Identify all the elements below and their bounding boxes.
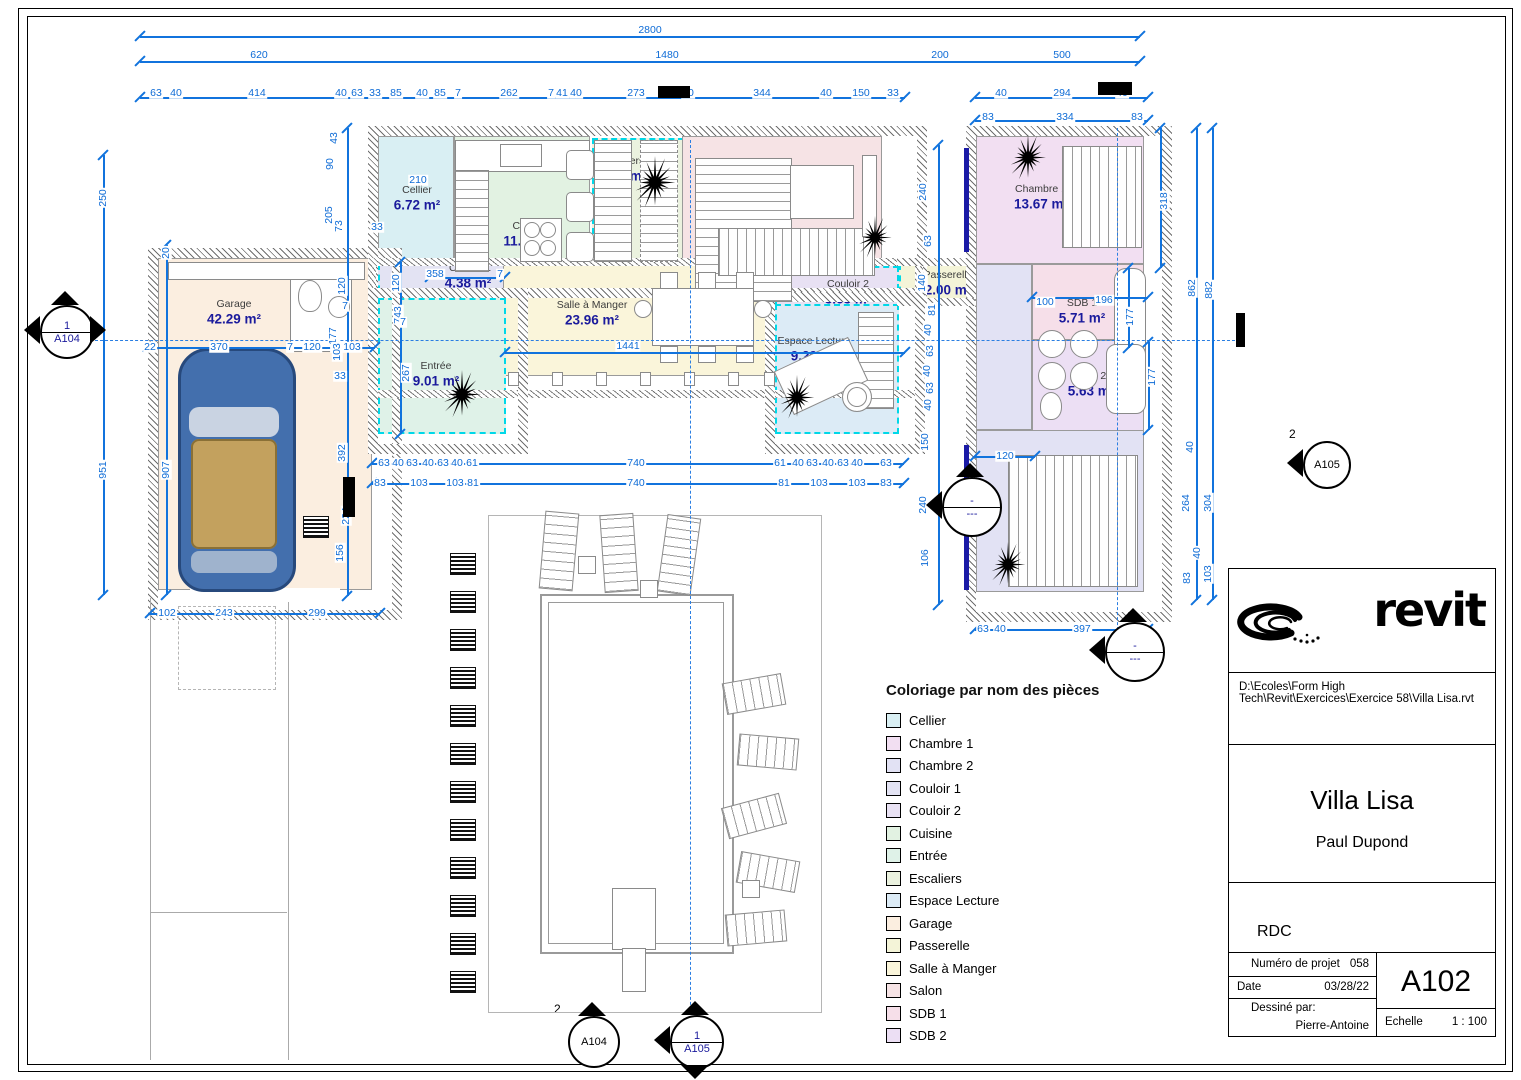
dimension-value: 1480: [654, 50, 679, 61]
stove-burner: [540, 222, 556, 238]
scale-label: Echelle: [1385, 1016, 1423, 1028]
car: [178, 348, 296, 592]
dimension-line: [1196, 128, 1198, 600]
car-windshield: [189, 407, 279, 437]
dimension-value: 85: [433, 88, 447, 99]
walkway-mat: [450, 667, 476, 689]
legend-item-sdb-1: SDB 1: [886, 1006, 1116, 1021]
dimension-line: [505, 352, 905, 354]
dimension-value: 40: [391, 458, 405, 469]
dimension-line: [166, 245, 168, 595]
dining-chair: [698, 346, 716, 363]
view-marker-arrow: [926, 491, 942, 519]
dimension-value: 90: [325, 157, 336, 171]
dimension-value: 20: [161, 246, 172, 260]
legend-label: Chambre 1: [909, 736, 973, 751]
legend-item-salon: Salon: [886, 983, 1116, 998]
dimension-value: 40: [169, 88, 183, 99]
centerline: [95, 340, 1245, 341]
dimension-value: 81: [466, 478, 480, 489]
view-marker-arrow: [90, 316, 106, 344]
pool-lounger: [725, 909, 788, 946]
dimension-value: 120: [995, 451, 1015, 462]
pool-side-table: [742, 880, 760, 898]
dimension-value: 7: [286, 342, 294, 353]
view-marker-label: A104: [54, 333, 80, 345]
dimension-value: 620: [249, 50, 269, 61]
dimension-value: 1441: [615, 341, 640, 352]
dimension-value: 63: [925, 381, 936, 395]
pool-side-table: [640, 580, 658, 598]
date-cell: Date 03/28/22: [1228, 976, 1378, 1000]
view-marker-arrow: [24, 316, 40, 344]
scale-cell: Echelle 1 : 100: [1376, 1008, 1496, 1037]
dimension-value: 103: [847, 478, 867, 489]
plant-icon: [774, 375, 820, 426]
view-marker: 1A105: [670, 1015, 724, 1069]
legend-label: Cellier: [909, 713, 946, 728]
title-block-project-cell: Villa Lisa Paul Dupond: [1228, 744, 1496, 884]
legend-swatch: [886, 893, 901, 908]
view-marker-arrow: [51, 291, 79, 305]
dimension-value: 22: [143, 342, 157, 353]
view-name: RDC: [1257, 923, 1495, 941]
dimension-value: 40: [850, 458, 864, 469]
legend-label: Passerelle: [909, 938, 970, 953]
legend-swatch: [886, 1028, 901, 1043]
title-block-logo-cell: revit: [1228, 568, 1496, 674]
dimension-value: 200: [930, 50, 950, 61]
dimension-value: 210: [408, 175, 428, 186]
dimension-value: 83: [879, 478, 893, 489]
stove-burner: [524, 222, 540, 238]
legend-label: Salle à Manger: [909, 961, 996, 976]
dimension-value: 63: [350, 88, 364, 99]
legend-label: Chambre 2: [909, 758, 973, 773]
dimension-value: 63: [436, 458, 450, 469]
legend: Coloriage par nom des pièces CellierCham…: [886, 682, 1116, 1051]
dimension-value: 140: [917, 273, 928, 293]
walkway-mat: [450, 819, 476, 841]
wall-section-bar: [1098, 82, 1132, 95]
legend-swatch: [886, 758, 901, 773]
walkway-mat: [450, 743, 476, 765]
view-marker: ----: [1105, 622, 1165, 682]
legend-label: Couloir 1: [909, 781, 961, 796]
bar-stool: [566, 150, 594, 180]
car-rear-window: [191, 551, 277, 573]
plant-icon: [437, 370, 487, 425]
dimension-value: 304: [1203, 493, 1214, 513]
view-marker-label: 1: [694, 1030, 700, 1042]
dimension-line: [938, 145, 940, 605]
dimension-value: 33: [368, 88, 382, 99]
dimension-value: 40: [923, 323, 934, 337]
kitchen-cabinet-column: [455, 170, 489, 272]
porch-post: [640, 372, 651, 386]
sheet-number: A102: [1377, 965, 1495, 999]
dimension-value: 40: [923, 398, 934, 412]
dining-chair: [698, 272, 716, 289]
view-marker-arrow: [956, 463, 984, 477]
toilet-sdb2: [1040, 392, 1062, 420]
view-marker-arrow: [1119, 608, 1147, 622]
car-interior: [191, 439, 277, 549]
view-marker-label: -: [970, 495, 974, 507]
view-marker-label: 1: [64, 320, 70, 332]
legend-label: Salon: [909, 983, 942, 998]
walkway-mat: [450, 629, 476, 651]
scale-value: 1 : 100: [1452, 1016, 1487, 1028]
reading-side-table: [842, 382, 872, 412]
dimension-value: 907: [161, 460, 172, 480]
dimension-value: 882: [1204, 280, 1215, 300]
dimension-value: 334: [1055, 112, 1075, 123]
walkway-mat: [450, 895, 476, 917]
dimension-value: 40: [421, 458, 435, 469]
view-marker-label: A104: [581, 1036, 607, 1048]
dimension-line: [1212, 128, 1214, 600]
dimension-value: 500: [1052, 50, 1072, 61]
view-marker: A104: [568, 1016, 620, 1068]
dimension-value: 267: [401, 363, 412, 383]
legend-swatch: [886, 713, 901, 728]
dimension-value: 294: [1052, 88, 1072, 99]
dimension-value: 63: [805, 458, 819, 469]
dimension-value: 273: [626, 88, 646, 99]
legend-swatch: [886, 781, 901, 796]
porch-post: [728, 372, 739, 386]
dimension-value: 40: [569, 88, 583, 99]
dimension-value: 106: [920, 548, 931, 568]
wall-section-bar: [658, 86, 690, 98]
dimension-value: 61: [465, 458, 479, 469]
view-marker-arrow: [578, 1002, 606, 1016]
legend-swatch: [886, 961, 901, 976]
dimension-value: 392: [337, 443, 348, 463]
porch-post: [552, 372, 563, 386]
dimension-value: 43: [329, 131, 340, 145]
dimension-line: [150, 613, 380, 615]
legend-swatch: [886, 938, 901, 953]
dimension-value: 103: [445, 478, 465, 489]
legend-label: Espace Lecture: [909, 893, 999, 908]
dimension-value: 83: [373, 478, 387, 489]
dimension-value: 264: [1181, 493, 1192, 513]
dining-chair: [736, 272, 754, 289]
dimension-value: 862: [1187, 278, 1198, 298]
dimension-value: 40: [791, 458, 805, 469]
bed-chambre1: [1062, 146, 1142, 248]
dimension-value: 103: [809, 478, 829, 489]
legend-swatch: [886, 848, 901, 863]
walkway-mat: [450, 705, 476, 727]
plant-icon: [985, 542, 1031, 593]
legend-label: Entrée: [909, 848, 947, 863]
dining-table: [652, 288, 754, 346]
date-label: Date: [1237, 981, 1261, 993]
dimension-value: 81: [927, 303, 938, 317]
dimension-value: 63: [879, 458, 893, 469]
dimension-value: 40: [1185, 440, 1196, 454]
title-block: revit D:\Ecoles\Form High Tech\Revit\Exe…: [1228, 568, 1496, 1037]
dimension-value: 83: [981, 112, 995, 123]
project-number-value: 058: [1350, 958, 1369, 970]
dimension-value: 250: [98, 188, 109, 208]
bar-stool: [566, 192, 594, 222]
view-marker-label: ---: [1130, 653, 1141, 665]
dimension-value: 63: [149, 88, 163, 99]
dimension-value: 40: [819, 88, 833, 99]
revit-logo-text: revit: [1373, 583, 1485, 637]
revit-logo-swirl: [1237, 595, 1333, 659]
view-marker-arrow: [681, 1001, 709, 1015]
dimension-value: 73: [334, 219, 345, 233]
project-name: Villa Lisa: [1229, 785, 1495, 816]
wall-section-bar: [343, 477, 355, 517]
drawing-sheet: Garage42.29 m²Cellier6.72 m²Cuisine11.67…: [0, 0, 1521, 1080]
dimension-value: 33: [886, 88, 900, 99]
bar-stool: [566, 232, 594, 262]
view-marker: 1A104: [40, 305, 94, 359]
legend-label: Couloir 2: [909, 803, 961, 818]
dimension-value: 63: [405, 458, 419, 469]
walkway-mat: [450, 857, 476, 879]
salon-table: [790, 165, 854, 219]
dimension-value: 177: [1125, 307, 1136, 327]
dimension-value: 7: [496, 269, 504, 280]
legend-swatch: [886, 736, 901, 751]
legend-label: Garage: [909, 916, 952, 931]
dimension-value: 102: [157, 608, 177, 619]
sheet-number-cell: A102: [1376, 952, 1496, 1010]
project-number-cell: Numéro de projet 058: [1228, 952, 1378, 978]
dimension-value: 63: [976, 624, 990, 635]
vanity-sink: [1070, 330, 1098, 358]
dimension-value: 41: [555, 88, 569, 99]
view-marker-number: 2: [1289, 427, 1296, 441]
project-author: Paul Dupond: [1229, 834, 1495, 852]
legend-swatch: [886, 803, 901, 818]
view-marker-arrow: [681, 1065, 709, 1079]
dimension-line: [103, 155, 105, 595]
plant-icon: [853, 216, 897, 265]
dimension-value: 150: [920, 432, 931, 452]
legend-item-couloir-1: Couloir 1: [886, 781, 1116, 796]
dimension-value: 103: [409, 478, 429, 489]
room-area: 2.00 m²: [925, 283, 972, 298]
dimension-value: 40: [334, 88, 348, 99]
wall-passerelle-top: [897, 258, 975, 266]
legend-title: Coloriage par nom des pièces: [886, 682, 1116, 699]
file-path: D:\Ecoles\Form High Tech\Revit\Exercices…: [1239, 681, 1485, 705]
legend-label: Cuisine: [909, 826, 952, 841]
title-block-path-cell: D:\Ecoles\Form High Tech\Revit\Exercices…: [1228, 672, 1496, 746]
legend-swatch: [886, 916, 901, 931]
dimension-value: 156: [335, 543, 346, 563]
dimension-value: 240: [918, 182, 929, 202]
dimension-line: [140, 61, 1140, 63]
dimension-value: 262: [499, 88, 519, 99]
legend-swatch: [886, 871, 901, 886]
stairs-flight-left: [594, 140, 632, 262]
legend-label: Escaliers: [909, 871, 962, 886]
walkway-mat: [450, 971, 476, 993]
driveway-split-line: [150, 912, 287, 913]
centerline: [690, 140, 691, 1040]
legend-item-entr-e: Entrée: [886, 848, 1116, 863]
legend-swatch: [886, 983, 901, 998]
dimension-value: 120: [302, 342, 322, 353]
legend-item-escaliers: Escaliers: [886, 871, 1116, 886]
dimension-value: 358: [425, 269, 445, 280]
dimension-value: 177: [1147, 367, 1158, 387]
dimension-value: 370: [209, 342, 229, 353]
dimension-value: 120: [337, 276, 348, 296]
plant-icon: [628, 156, 682, 215]
legend-items: CellierChambre 1Chambre 2Couloir 1Couloi…: [886, 713, 1116, 1043]
dimension-value: 7: [547, 88, 555, 99]
view-marker-label: A105: [684, 1043, 710, 1055]
dimension-value: 414: [247, 88, 267, 99]
dimension-value: 40: [993, 624, 1007, 635]
drawn-by-label: Dessiné par:: [1251, 1002, 1316, 1014]
walkway-mat: [450, 591, 476, 613]
view-marker-arrow: [1287, 449, 1303, 477]
project-number-label: Numéro de projet: [1251, 958, 1340, 970]
drawn-by-cell: Dessiné par: Pierre-Antoine: [1228, 998, 1378, 1037]
dimension-line: [140, 36, 1140, 38]
vanity-sink: [1070, 362, 1098, 390]
legend-item-garage: Garage: [886, 916, 1116, 931]
legend-label: SDB 1: [909, 1006, 947, 1021]
dining-chair-round: [754, 300, 772, 318]
dimension-value: 243: [214, 608, 234, 619]
legend-item-chambre-1: Chambre 1: [886, 736, 1116, 751]
dimension-value: 196: [1094, 295, 1114, 306]
pool-lounger: [539, 511, 580, 592]
dimension-value: 740: [626, 458, 646, 469]
dimension-value: 40: [450, 458, 464, 469]
dimension-value: 83: [1182, 571, 1193, 585]
dimension-value: 7: [341, 301, 349, 312]
plant-icon: [1004, 134, 1052, 187]
dimension-value: 344: [752, 88, 772, 99]
dimension-value: 299: [307, 608, 327, 619]
dimension-value: 951: [98, 460, 109, 480]
diving-board: [612, 888, 656, 950]
stove-burner: [540, 240, 556, 256]
view-marker-label: -: [1133, 640, 1137, 652]
legend-item-sdb-2: SDB 2: [886, 1028, 1116, 1043]
walkway-mat: [450, 781, 476, 803]
dimension-value: 103: [342, 342, 362, 353]
view-marker: ----: [942, 477, 1002, 537]
pool-lounger: [599, 513, 638, 593]
legend-label: SDB 2: [909, 1028, 947, 1043]
shower-sdb2: [1106, 344, 1146, 414]
dimension-value: 85: [389, 88, 403, 99]
drawn-by-value: Pierre-Antoine: [1295, 1020, 1369, 1032]
dimension-value: 81: [777, 478, 791, 489]
dimension-value: 40: [922, 364, 933, 378]
dining-chair-round: [634, 300, 652, 318]
dimension-value: 63: [925, 344, 936, 358]
dimension-value: 2800: [637, 25, 662, 36]
legend-item-couloir-2: Couloir 2: [886, 803, 1116, 818]
vanity-sink: [1038, 330, 1066, 358]
pool-lounger: [737, 733, 800, 770]
walkway-mat: [450, 553, 476, 575]
dimension-value: 63: [377, 458, 391, 469]
wall-section-bar: [1236, 313, 1245, 347]
dimension-value: 40: [821, 458, 835, 469]
dimension-value: 397: [1072, 624, 1092, 635]
pool-side-table: [578, 556, 596, 574]
dimension-value: 103: [1203, 564, 1214, 584]
view-marker-label: ---: [967, 508, 978, 520]
stove-burner: [524, 240, 540, 256]
legend-item-espace-lecture: Espace Lecture: [886, 893, 1116, 908]
view-marker-label: A105: [1314, 459, 1340, 471]
dimension-value: 33: [333, 371, 347, 382]
dining-chair: [736, 346, 754, 363]
legend-swatch: [886, 826, 901, 841]
dimension-value: 63: [836, 458, 850, 469]
dimension-value: 33: [370, 222, 384, 233]
date-value: 03/28/22: [1324, 981, 1369, 993]
dimension-value: 7: [454, 88, 462, 99]
legend-item-chambre-2: Chambre 2: [886, 758, 1116, 773]
legend-swatch: [886, 1006, 901, 1021]
legend-item-salle-manger: Salle à Manger: [886, 961, 1116, 976]
dimension-line: [347, 128, 349, 596]
walkway-mat: [450, 933, 476, 955]
vanity-sink: [1038, 362, 1066, 390]
dimension-value: 7: [399, 317, 407, 328]
dimension-value: 100: [1035, 297, 1055, 308]
glazed-wall-chambre1: [964, 148, 969, 252]
dining-chair: [660, 346, 678, 363]
dimension-value: 103: [332, 342, 343, 362]
dimension-value: 40: [415, 88, 429, 99]
dimension-value: 740: [626, 478, 646, 489]
dimension-value: 61: [773, 458, 787, 469]
dimension-value: 83: [1130, 112, 1144, 123]
salon-sofa: [718, 228, 875, 276]
view-marker: A105: [1303, 441, 1351, 489]
centerline: [1117, 128, 1118, 660]
view-marker-arrow: [654, 1026, 670, 1054]
legend-item-passerelle: Passerelle: [886, 938, 1116, 953]
porch-post: [508, 372, 519, 386]
dimension-value: 40: [994, 88, 1008, 99]
dimension-value: 63: [923, 234, 934, 248]
dimension-value: 120: [391, 273, 402, 293]
legend-item-cuisine: Cuisine: [886, 826, 1116, 841]
view-marker-arrow: [1089, 636, 1105, 664]
dimension-value: 40: [1192, 546, 1203, 560]
dimension-value: 150: [851, 88, 871, 99]
legend-item-cellier: Cellier: [886, 713, 1116, 728]
diving-board-plank: [622, 948, 646, 992]
porch-post: [596, 372, 607, 386]
kitchen-sink: [500, 144, 542, 167]
title-block-view-cell: RDC: [1228, 882, 1496, 954]
dimension-value: 318: [1159, 191, 1170, 211]
dining-chair: [660, 272, 678, 289]
toilet: [298, 280, 322, 312]
